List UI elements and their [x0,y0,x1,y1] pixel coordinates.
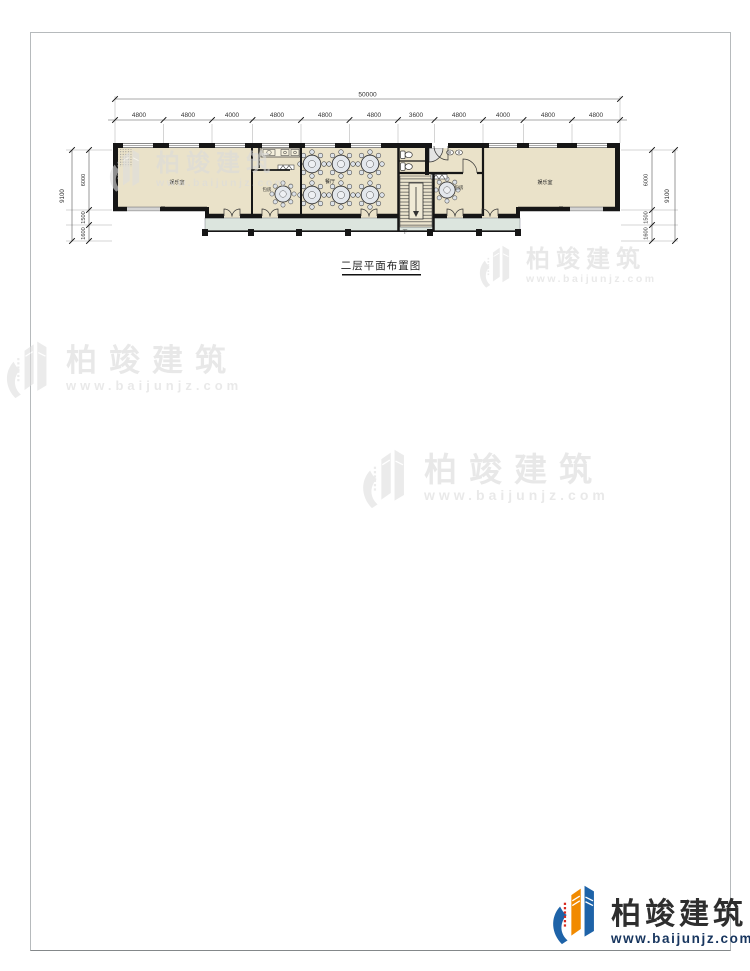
private-room-table-right [434,177,460,203]
dim-seg: 4800 [541,112,556,119]
dim-seg: 4800 [132,112,147,119]
dim-seg: 1500 [81,211,87,223]
stair-down-label: 下 [402,230,407,236]
dim-seg: 1500 [644,211,650,223]
balcony [202,218,521,236]
dim-seg: 4800 [452,112,467,119]
dim-seg: 3600 [409,112,424,119]
dim-total-height: 9100 [664,189,671,203]
drawing-title: 二层平面布置图 [341,260,422,272]
dim-seg: 6000 [81,174,87,186]
dimension-right: 6000 1500 1600 9100 [621,147,678,244]
dim-seg: 4000 [496,112,511,119]
private-room-table-left [270,181,296,207]
cabinet [278,165,294,170]
floor-plan-drawing: 50000 4800 4800 4000 4800 4800 4800 3600… [55,85,700,290]
drawing-title-block: 二层平面布置图 [341,260,422,275]
dim-seg: 1600 [644,227,650,239]
brand-footer: 柏竣建筑 www.baijunjz.com [548,882,750,946]
dim-seg: 6000 [644,174,650,186]
dim-seg: 4800 [367,112,382,119]
dim-seg: 4800 [589,112,604,119]
room-label-private-right: 包房 [455,184,464,191]
dim-seg: 4800 [270,112,285,119]
brand-logo-icon [548,882,606,946]
dim-seg: 1600 [81,227,87,239]
room-label-dining: 餐厅 [325,178,335,185]
pier-hatch [119,149,132,167]
room-label-left-hall: 娱乐室 [169,179,184,186]
room-label-right-hall: 娱乐室 [537,179,552,186]
service-counter [261,148,300,157]
dimension-top: 50000 4800 4800 4000 4800 4800 4800 3600… [108,92,627,144]
dimension-left: 6000 1500 1600 9100 [59,147,112,244]
stairs [400,176,432,227]
dim-seg: 4000 [225,112,240,119]
dim-seg: 4800 [318,112,333,119]
dim-total-height: 9100 [59,189,66,203]
room-label-private-left: 包房 [263,186,272,193]
dim-seg: 4800 [181,112,196,119]
brand-url-text: www.baijunjz.com [611,931,750,946]
dim-total-width: 50000 [358,92,377,99]
brand-name-text: 柏竣建筑 [611,899,750,931]
